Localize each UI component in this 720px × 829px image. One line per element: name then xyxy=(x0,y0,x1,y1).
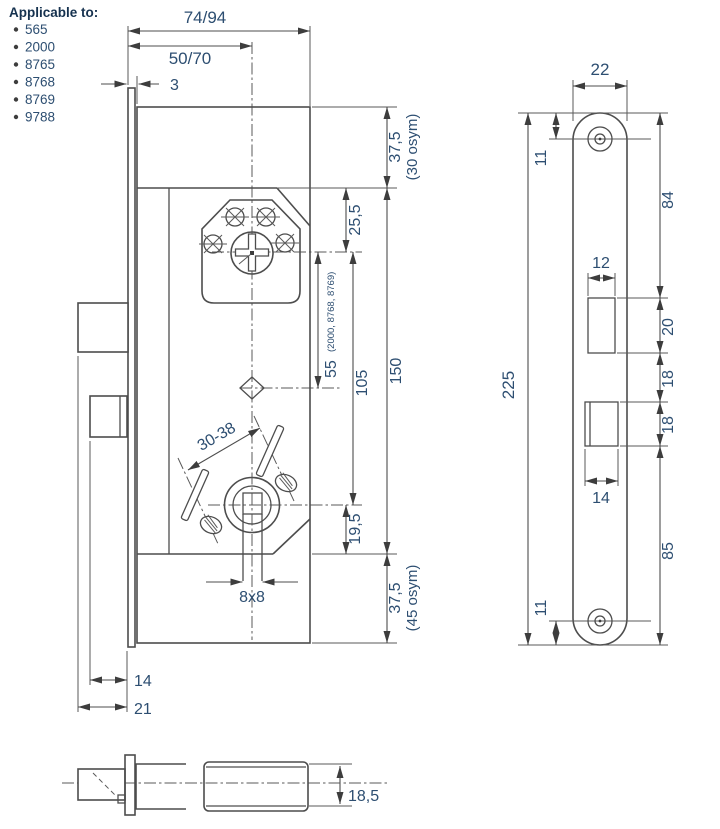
faceplate-edge xyxy=(128,88,135,647)
dim-alt-centre-label: 55 xyxy=(323,360,340,378)
dim-latch-cutout-width-label: 12 xyxy=(592,255,610,272)
dim-alt-centre-note: (2000, 8768, 8769) xyxy=(326,272,337,352)
dim-bottom-margin-note: (45 osym) xyxy=(404,565,421,632)
applicable-item: 2000 xyxy=(25,40,55,55)
dim-faceplate-length-label: 225 xyxy=(499,371,518,399)
dim-case-height-label: 150 xyxy=(388,358,405,385)
bullet-icon xyxy=(14,27,18,31)
dim-top-to-latch-label: 84 xyxy=(660,191,677,209)
screw-icon xyxy=(271,234,299,252)
dim-deadbolt-throw-label: 14 xyxy=(134,673,152,690)
latch-cutout xyxy=(588,298,615,353)
dim-deadbolt-to-bottom-label: 85 xyxy=(660,542,677,560)
left-view-dimensions: 74/94 50/70 3 37,5 (30 osym) 25,5 55 (20… xyxy=(78,8,421,718)
screw-icon xyxy=(199,235,227,253)
dim-faceplate-width-label: 22 xyxy=(591,60,610,79)
lock-case-side-view xyxy=(78,88,310,647)
applicable-item: 8765 xyxy=(25,57,55,72)
dim-bottom-margin-label: 37,5 xyxy=(387,582,404,613)
screw-hole xyxy=(549,609,651,633)
dim-cylinder-offset-label: 25,5 xyxy=(347,204,364,235)
dim-latch-cutout-height-label: 20 xyxy=(660,318,677,336)
screw-head-icon xyxy=(198,513,225,537)
latch-bolt xyxy=(78,303,128,352)
case-body-section xyxy=(204,762,308,811)
dim-gap-label: 18 xyxy=(660,370,677,388)
dim-latch-throw-label: 21 xyxy=(134,701,152,718)
dim-total-width-label: 74/94 xyxy=(184,8,227,27)
applicable-to-title: Applicable to: xyxy=(9,5,98,20)
faceplate-outline xyxy=(573,113,627,645)
dim-backset-label: 50/70 xyxy=(169,49,212,68)
bullet-icon xyxy=(14,80,18,84)
bullet-icon xyxy=(14,45,18,49)
drawing-svg: Applicable to: 565 2000 8765 8768 8769 9… xyxy=(0,0,720,829)
applicable-item: 565 xyxy=(25,22,48,37)
faceplate-front-view xyxy=(549,113,651,645)
dim-faceplate-thickness-label: 3 xyxy=(170,77,179,94)
deadbolt xyxy=(90,396,127,437)
case-mouth xyxy=(136,764,186,809)
dim-top-margin-label: 37,5 xyxy=(387,131,404,162)
faceplate-section xyxy=(125,755,135,815)
screw-icon xyxy=(221,208,249,226)
dim-top-screw-offset-label: 11 xyxy=(533,150,550,167)
dim-screw-spacing-label: 30-38 xyxy=(195,419,239,454)
dim-centre-distance-label: 105 xyxy=(354,370,371,397)
applicable-item: 8768 xyxy=(25,75,55,90)
case-bottom-view: 18,5 xyxy=(62,755,388,815)
dim-top-margin-note: (30 osym) xyxy=(404,114,421,181)
dim-deadbolt-cutout-height-label: 18 xyxy=(660,416,677,434)
applicable-item: 8769 xyxy=(25,92,55,107)
dim-case-thickness-label: 18,5 xyxy=(348,788,379,805)
bullet-icon xyxy=(14,97,18,101)
dim-bottom-screw-offset-label: 11 xyxy=(533,600,550,617)
dim-follower-offset-label: 19,5 xyxy=(347,513,364,544)
dim-deadbolt-cutout-width-label: 14 xyxy=(592,490,610,507)
dim-spindle-hole-label: 8x8 xyxy=(239,589,265,606)
applicable-to-list: Applicable to: 565 2000 8765 8768 8769 9… xyxy=(9,5,98,125)
bullet-icon xyxy=(14,115,18,119)
lock-technical-drawing: Applicable to: 565 2000 8765 8768 8769 9… xyxy=(0,0,720,829)
screw-hole xyxy=(549,127,651,151)
applicable-item: 9788 xyxy=(25,110,55,125)
bullet-icon xyxy=(14,62,18,66)
screw-icon xyxy=(252,208,280,226)
